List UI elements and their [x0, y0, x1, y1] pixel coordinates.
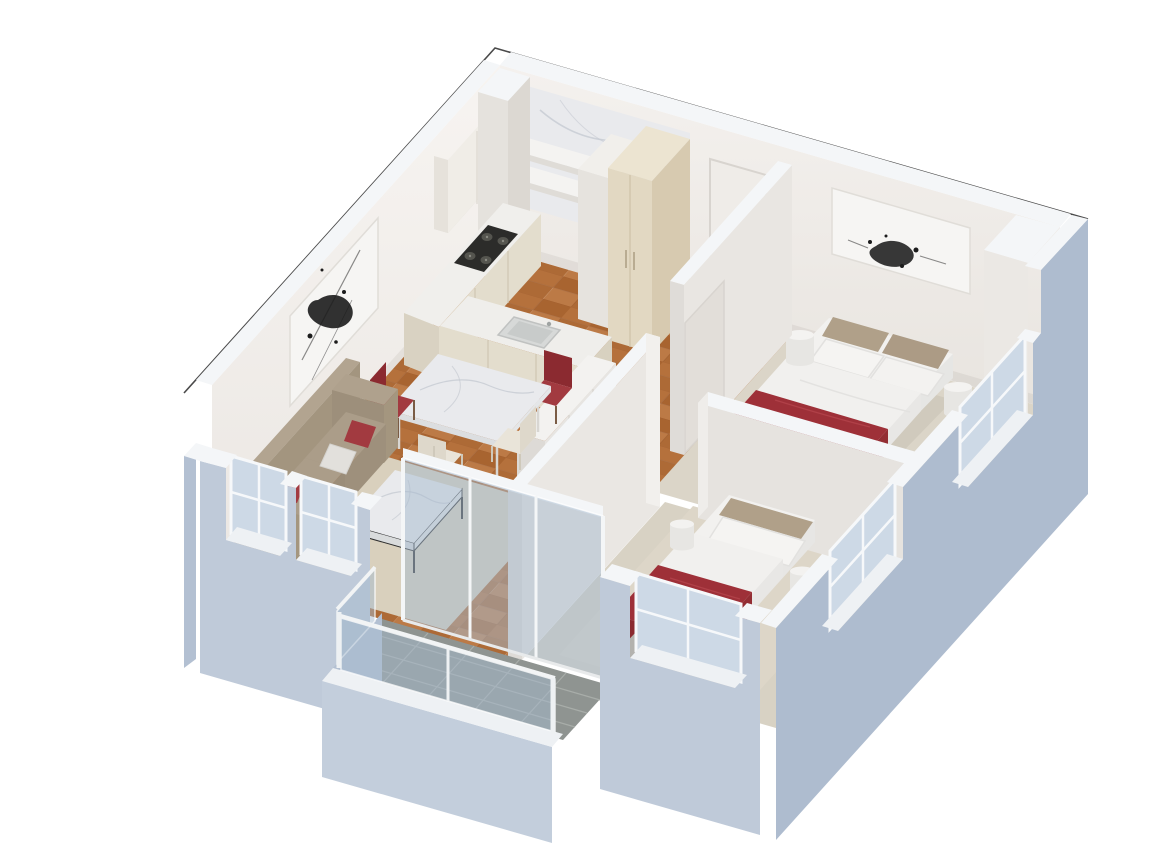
- side-table-left: [670, 520, 694, 551]
- exterior-wall-bedroom2-front: [600, 564, 772, 835]
- apartment-3d-floor-plan: [0, 0, 1170, 859]
- upper-cabinets-side: [434, 156, 448, 233]
- floor-plan-render-stage: [0, 0, 1170, 859]
- faucet: [547, 322, 551, 326]
